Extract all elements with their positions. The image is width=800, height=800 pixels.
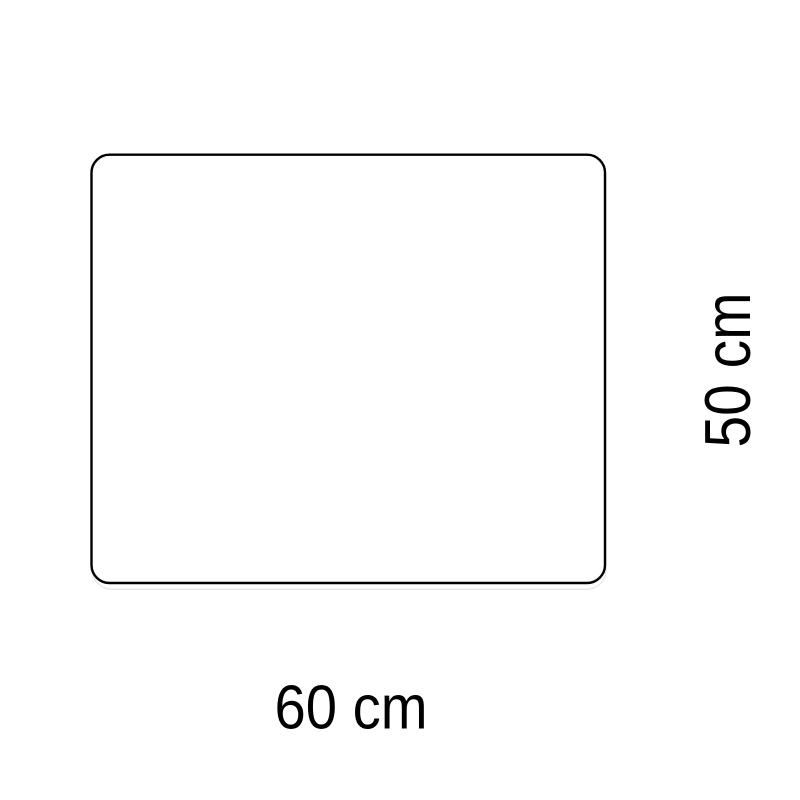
svg-text:60 cm: 60 cm — [275, 674, 428, 743]
svg-text:50 cm: 50 cm — [691, 293, 764, 448]
